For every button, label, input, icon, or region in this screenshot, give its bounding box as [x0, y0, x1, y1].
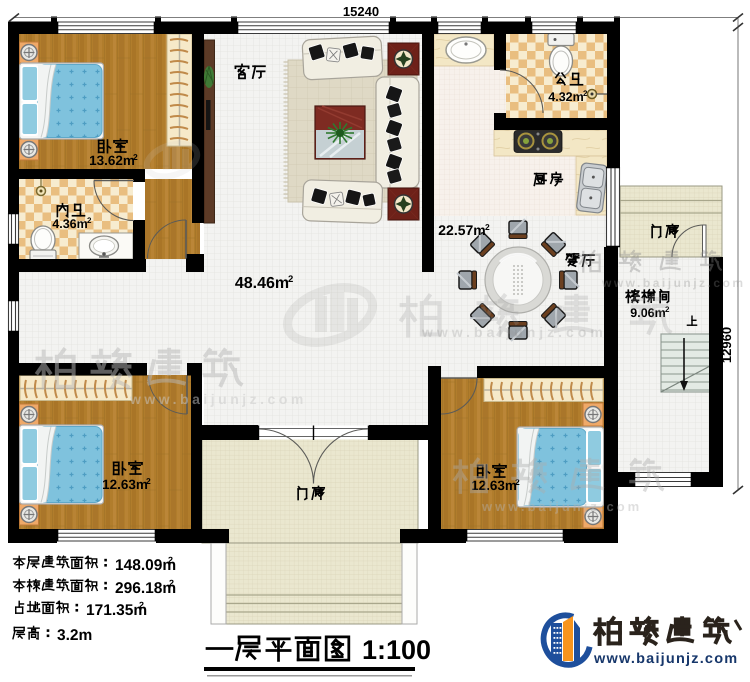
svg-text:4.32m: 4.32m [548, 90, 583, 104]
svg-text:12960: 12960 [719, 327, 734, 363]
svg-text:296.18m: 296.18m [115, 580, 176, 597]
svg-text:2: 2 [146, 476, 151, 486]
svg-text:2: 2 [139, 600, 144, 610]
svg-text:2: 2 [169, 578, 174, 588]
svg-text:www.baijunjz.com: www.baijunjz.com [601, 276, 746, 290]
svg-text:4.36m: 4.36m [52, 217, 87, 231]
svg-text:15240: 15240 [343, 4, 379, 19]
svg-text:22.57m: 22.57m [438, 222, 485, 238]
svg-text:1:100: 1:100 [362, 635, 431, 665]
svg-text:2: 2 [133, 152, 138, 162]
svg-text:2: 2 [87, 216, 92, 225]
svg-text:www.baijunjz.com: www.baijunjz.com [593, 651, 738, 667]
svg-text:www.baijunjz.com: www.baijunjz.com [481, 499, 642, 514]
svg-text:www.baijunjz.com: www.baijunjz.com [129, 391, 307, 407]
svg-text:2: 2 [168, 555, 173, 565]
svg-text:48.46m: 48.46m [235, 275, 289, 292]
svg-text:3.2m: 3.2m [57, 627, 92, 644]
svg-text:12.63m: 12.63m [102, 477, 148, 492]
svg-text:2: 2 [485, 222, 490, 232]
svg-text:2: 2 [288, 274, 293, 285]
svg-text:13.62m: 13.62m [89, 153, 135, 168]
svg-text:2: 2 [583, 89, 588, 98]
svg-text:www.baijunjz.com: www.baijunjz.com [421, 324, 607, 340]
